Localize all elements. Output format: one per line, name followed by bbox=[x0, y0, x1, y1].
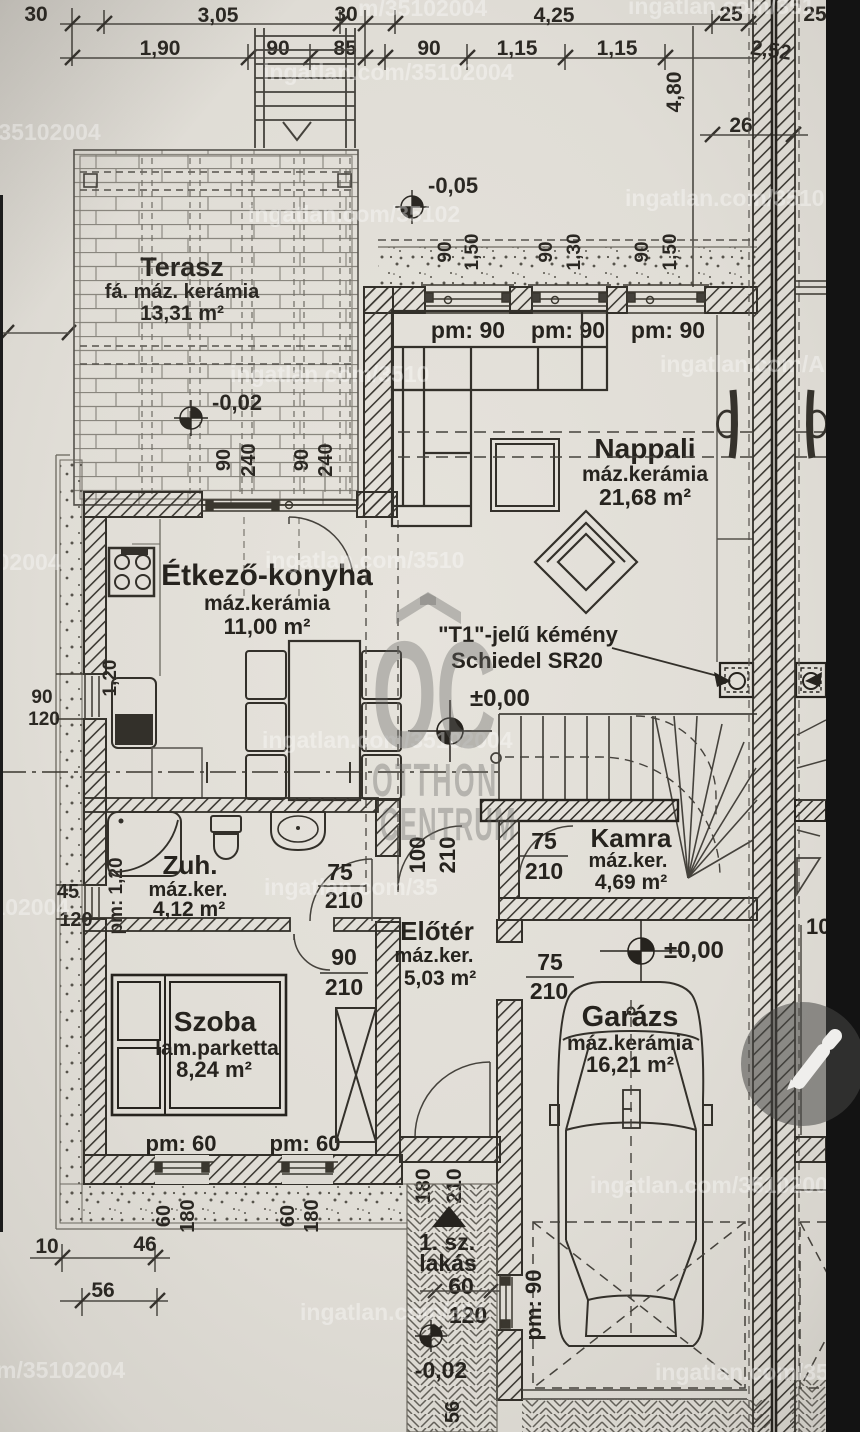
svg-text:90: 90 bbox=[632, 241, 653, 262]
svg-text:90: 90 bbox=[536, 241, 557, 262]
svg-text:5,03 m²: 5,03 m² bbox=[404, 967, 476, 990]
svg-text:máz.ker.: máz.ker. bbox=[589, 850, 668, 872]
svg-text:ingatlan.com/35102004: ingatlan.com/35102004 bbox=[263, 59, 514, 85]
svg-text:90: 90 bbox=[291, 449, 313, 471]
svg-text:ingatlan.com/35: ingatlan.com/35 bbox=[264, 874, 438, 900]
svg-text:±0,00: ±0,00 bbox=[664, 937, 724, 964]
svg-text:11,00 m²: 11,00 m² bbox=[224, 614, 311, 639]
svg-text:ingatlan.com/3510: ingatlan.com/3510 bbox=[265, 547, 464, 573]
svg-text:3,05: 3,05 bbox=[198, 4, 239, 27]
svg-text:8,24 m²: 8,24 m² bbox=[176, 1057, 252, 1082]
svg-text:-0,05: -0,05 bbox=[428, 173, 478, 198]
svg-text:75: 75 bbox=[531, 828, 557, 854]
svg-text:4,69 m²: 4,69 m² bbox=[595, 871, 667, 894]
svg-text:60: 60 bbox=[448, 1273, 474, 1299]
svg-text:13,31 m²: 13,31 m² bbox=[140, 302, 224, 325]
svg-text:60: 60 bbox=[153, 1205, 175, 1227]
svg-text:90: 90 bbox=[435, 241, 456, 262]
svg-text:ingatlan.com/35102004: ingatlan.com/35102004 bbox=[0, 549, 61, 575]
svg-text:90: 90 bbox=[266, 37, 289, 60]
svg-text:ingatlan.com/351: ingatlan.com/351 bbox=[628, 0, 815, 19]
svg-text:Nappali: Nappali bbox=[594, 433, 695, 464]
svg-text:16,21 m²: 16,21 m² bbox=[586, 1052, 674, 1077]
svg-text:máz.kerámia: máz.kerámia bbox=[204, 592, 330, 615]
svg-text:210: 210 bbox=[530, 978, 568, 1004]
svg-text:4,12 m²: 4,12 m² bbox=[153, 898, 225, 921]
svg-text:pm: 90: pm: 90 bbox=[521, 1270, 546, 1341]
svg-text:Terasz: Terasz bbox=[140, 252, 224, 282]
svg-text:máz.ker.: máz.ker. bbox=[395, 945, 474, 967]
svg-text:180: 180 bbox=[177, 1199, 199, 1232]
svg-text:om/35102004: om/35102004 bbox=[0, 1357, 125, 1383]
svg-text:/35102004: /35102004 bbox=[0, 119, 101, 145]
svg-text:1,15: 1,15 bbox=[497, 37, 538, 60]
svg-text:90: 90 bbox=[331, 944, 357, 970]
svg-text:-0,02: -0,02 bbox=[212, 390, 262, 415]
svg-text:180: 180 bbox=[301, 1199, 323, 1232]
svg-text:240: 240 bbox=[238, 443, 260, 476]
svg-text:Garázs: Garázs bbox=[582, 1001, 679, 1033]
svg-text:ingatlan.com/A: ingatlan.com/A bbox=[660, 351, 825, 377]
svg-text:10: 10 bbox=[35, 1235, 58, 1258]
svg-text:46: 46 bbox=[133, 1233, 156, 1256]
svg-text:120: 120 bbox=[28, 709, 60, 730]
svg-text:ingatlan.com/3510: ingatlan.com/3510 bbox=[230, 361, 429, 387]
svg-text:ingatlan.com/35102: ingatlan.com/35102 bbox=[248, 201, 460, 227]
svg-text:Zuh.: Zuh. bbox=[163, 850, 218, 880]
svg-text:4,80: 4,80 bbox=[663, 72, 686, 113]
svg-text:pm: 90: pm: 90 bbox=[431, 317, 505, 343]
svg-text:m/35102004: m/35102004 bbox=[0, 894, 69, 920]
svg-text:ingatlan.com/3510: ingatlan.com/3510 bbox=[625, 185, 824, 211]
svg-text:fá. máz. kerámia: fá. máz. kerámia bbox=[105, 281, 260, 303]
svg-text:90: 90 bbox=[417, 37, 440, 60]
svg-text:210: 210 bbox=[525, 858, 563, 884]
svg-text:ingatlan.com/351: ingatlan.com/351 bbox=[655, 1359, 842, 1385]
svg-text:Szoba: Szoba bbox=[174, 1006, 257, 1037]
svg-text:60: 60 bbox=[277, 1205, 299, 1227]
svg-text:-0,02: -0,02 bbox=[415, 1357, 467, 1383]
svg-text:90: 90 bbox=[213, 449, 235, 471]
svg-text:CENTRUM: CENTRUM bbox=[380, 798, 517, 850]
svg-text:90: 90 bbox=[31, 687, 52, 708]
svg-text:75: 75 bbox=[537, 949, 563, 975]
svg-text:210: 210 bbox=[325, 974, 363, 1000]
svg-text:pm: 60: pm: 60 bbox=[146, 1131, 217, 1156]
svg-text:pm: 90: pm: 90 bbox=[631, 317, 705, 343]
svg-text:ingatlan.com/35102004: ingatlan.com/35102004 bbox=[590, 1172, 841, 1198]
svg-text:4,25: 4,25 bbox=[534, 4, 575, 27]
svg-text:1,50: 1,50 bbox=[660, 234, 681, 271]
svg-text:máz.kerámia: máz.kerámia bbox=[582, 463, 708, 486]
svg-text:56: 56 bbox=[91, 1279, 114, 1302]
svg-text:21,68 m²: 21,68 m² bbox=[599, 484, 691, 510]
svg-text:1,50: 1,50 bbox=[462, 234, 483, 271]
svg-text:240: 240 bbox=[315, 443, 337, 476]
svg-text:Kamra: Kamra bbox=[591, 823, 672, 853]
svg-text:m/35102004: m/35102004 bbox=[358, 0, 487, 21]
svg-text:1,30: 1,30 bbox=[564, 234, 585, 271]
svg-text:30: 30 bbox=[334, 3, 357, 26]
svg-text:56: 56 bbox=[442, 1401, 464, 1423]
svg-text:pm: 90: pm: 90 bbox=[531, 317, 605, 343]
svg-text:pm: 60: pm: 60 bbox=[270, 1131, 341, 1156]
svg-text:ingatlan.com/351: ingatlan.com/351 bbox=[300, 1299, 487, 1325]
svg-text:Előtér: Előtér bbox=[400, 916, 474, 946]
svg-text:1,15: 1,15 bbox=[597, 37, 638, 60]
svg-text:1,90: 1,90 bbox=[140, 37, 181, 60]
svg-text:30: 30 bbox=[24, 3, 47, 26]
